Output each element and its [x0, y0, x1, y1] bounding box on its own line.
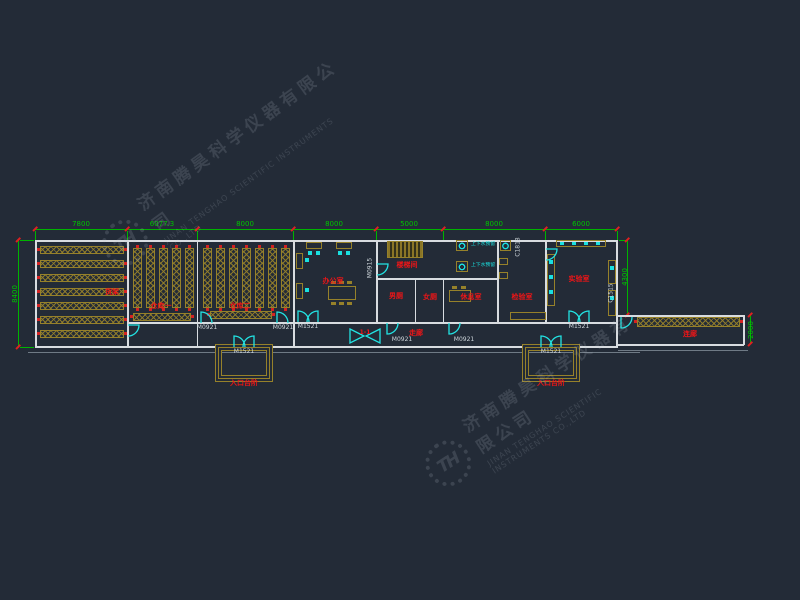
door-double [297, 309, 319, 322]
wall [376, 240, 378, 322]
wall [443, 278, 444, 322]
desk [336, 242, 352, 249]
storage-rack [40, 330, 124, 338]
room-label-storage1: 仓库一 [151, 303, 172, 311]
workbench [510, 312, 546, 320]
room-label-storage2: 仓库二 [230, 303, 251, 311]
door-label: M0915 [368, 258, 375, 278]
instrument [584, 242, 588, 245]
extension-line [293, 231, 294, 240]
extension-line [376, 231, 377, 240]
door-label: M1521 [234, 349, 254, 356]
dim-label: 8000 [325, 221, 343, 229]
room-label-lab: 实验室 [569, 276, 590, 284]
lab-bench [608, 260, 616, 284]
storage-rack [185, 248, 194, 308]
shelf-note: 货架 [105, 289, 119, 297]
cabinet [499, 258, 508, 265]
company-name-cn: 济南腾昊科学仪器有限公司 [131, 51, 358, 235]
storage-rack [210, 311, 272, 319]
sink [456, 261, 468, 272]
door-label: M0921 [454, 337, 474, 344]
extension-line [617, 231, 618, 240]
storage-rack [146, 248, 155, 308]
room-label-wc-f: 女厕 [423, 294, 437, 302]
extension-line [545, 231, 546, 240]
chair [305, 258, 309, 262]
sink [500, 240, 511, 251]
room-label-stair: 楼梯间 [397, 262, 418, 270]
chair [305, 288, 309, 292]
door-label: M0921 [273, 325, 293, 332]
dim-label: 8000 [485, 221, 503, 229]
door-single [128, 324, 141, 337]
chair [347, 281, 352, 284]
entrance-label: 入口台阶 [230, 380, 258, 388]
company-name-en: JINAN TENGHAO SCIENTIFIC INSTRUMENTS CO.… [485, 349, 666, 475]
chair [347, 302, 352, 305]
instrument [596, 242, 600, 245]
desk [306, 242, 322, 249]
storage-rack [255, 248, 264, 308]
extension-line [443, 231, 444, 240]
dim-label: 6000 [572, 221, 590, 229]
door-label: M1521 [569, 324, 589, 331]
door-single [620, 317, 633, 330]
door-single [386, 323, 399, 336]
sink-note: 上下水预留 [471, 242, 495, 247]
dim-label: 8000 [236, 221, 254, 229]
storage-rack [40, 302, 124, 310]
storage-rack [203, 248, 212, 308]
company-logo-icon: TH [416, 431, 480, 495]
desk [296, 253, 303, 269]
staircase [387, 241, 423, 258]
wall [497, 240, 499, 322]
storage-rack [172, 248, 181, 308]
dimension-line-top [35, 229, 618, 230]
storage-rack [216, 248, 225, 308]
sink-note: 上下水预留 [471, 263, 495, 268]
instrument [549, 275, 553, 279]
door-single [377, 263, 390, 276]
watermark-text: 济南腾昊科学仪器有限公司 JINAN TENGHAO SCIENTIFIC IN… [457, 304, 667, 475]
door-single [200, 310, 213, 323]
instrument [610, 266, 614, 270]
storage-rack [242, 248, 251, 308]
chair [338, 251, 342, 255]
door-single [448, 323, 461, 336]
instrument [572, 242, 576, 245]
dim-tick [747, 341, 752, 346]
door-label: M1521 [298, 324, 318, 331]
door-single [276, 310, 289, 323]
chair [331, 302, 336, 305]
wall [293, 240, 295, 346]
storage-rack [281, 248, 290, 308]
watermark-upper: TH 济南腾昊科学仪器有限公司 JINAN TENGHAO SCIENTIFIC… [77, 39, 378, 296]
chair [452, 286, 457, 289]
room-label-inspection: 检验室 [512, 294, 533, 302]
storage-rack [133, 313, 191, 321]
ground-line [618, 350, 748, 351]
section-marker-label: 1-1 [360, 330, 371, 337]
dim-label: 8400 [12, 285, 20, 303]
dim-label: 6077.3 [150, 221, 175, 229]
room-label-east-corridor: 连廊 [683, 331, 697, 339]
cabinet [499, 272, 508, 279]
door-label: M0921 [392, 337, 412, 344]
storage-rack [268, 248, 277, 308]
wall [616, 240, 618, 346]
storage-rack [133, 248, 142, 308]
storage-rack [40, 260, 124, 268]
dim-label: 7800 [72, 221, 90, 229]
chair [339, 302, 344, 305]
door-label: M1521 [541, 349, 561, 356]
wall [35, 346, 618, 348]
storage-rack [159, 248, 168, 308]
wall [376, 278, 497, 280]
chair [461, 286, 466, 289]
storage-rack [637, 317, 740, 327]
wall [35, 240, 618, 242]
instrument [549, 290, 553, 294]
sink [456, 240, 468, 251]
door-label: M0921 [197, 325, 217, 332]
door-double [568, 309, 590, 322]
extension-line [20, 347, 34, 348]
storage-rack [40, 316, 124, 324]
extension-line [35, 231, 36, 240]
wall [618, 344, 744, 346]
window-label: C1515 [609, 283, 616, 302]
room-label-office: 办公室 [323, 278, 344, 286]
storage-rack [40, 246, 124, 254]
desk [296, 283, 303, 299]
wall [415, 278, 416, 322]
dim-label: 2000 [748, 321, 756, 339]
cad-canvas[interactable]: 7800 6077.3 8000 8000 5000 8000 6000 840… [0, 0, 800, 600]
window-label: C1818 [516, 237, 523, 256]
extension-line [127, 231, 128, 240]
extension-line [197, 231, 198, 240]
storage-rack [40, 274, 124, 282]
door-double [233, 334, 255, 347]
wall [743, 315, 745, 345]
instrument [560, 242, 564, 245]
storage-rack [229, 248, 238, 308]
door-double [540, 334, 562, 347]
meeting-table [328, 286, 356, 300]
entrance-label: 入口台阶 [537, 380, 565, 388]
dim-label: 5000 [400, 221, 418, 229]
chair [316, 251, 320, 255]
room-label-rest: 休息室 [461, 294, 482, 302]
chair [308, 251, 312, 255]
extension-line [20, 240, 34, 241]
dim-label: 4300 [622, 268, 630, 286]
room-label-wc-m: 男厕 [389, 293, 403, 301]
chair [346, 251, 350, 255]
door-single [546, 248, 559, 261]
